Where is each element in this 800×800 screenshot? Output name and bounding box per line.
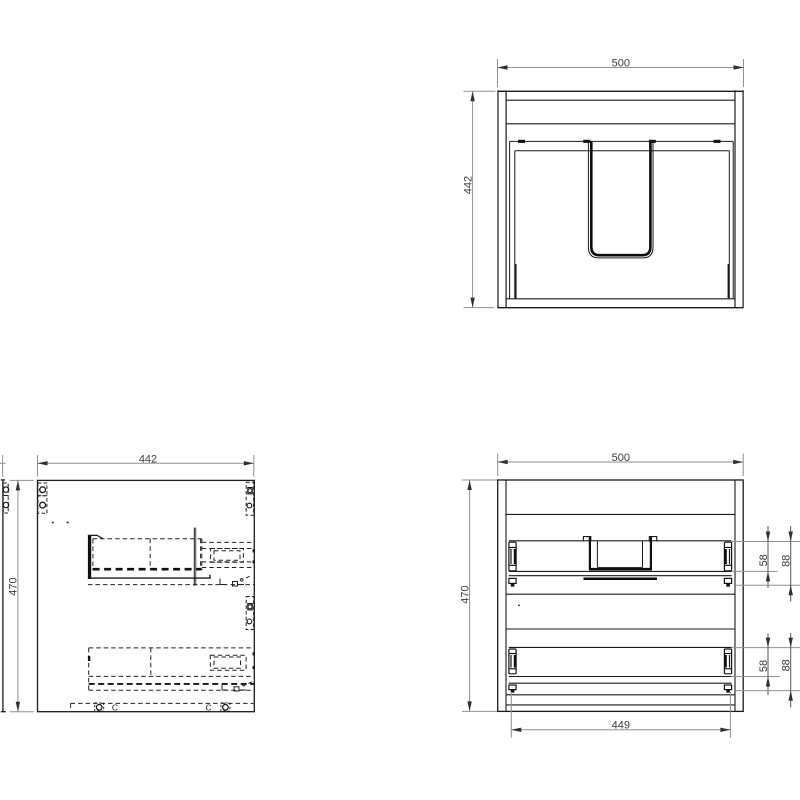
svg-text:470: 470 [8, 577, 20, 595]
svg-text:442: 442 [462, 176, 474, 194]
svg-text:88: 88 [781, 659, 793, 671]
svg-text:58: 58 [758, 660, 770, 672]
svg-text:C: C [112, 703, 118, 713]
svg-text:C: C [206, 703, 212, 713]
svg-text:500: 500 [612, 58, 630, 70]
svg-text:88: 88 [781, 555, 793, 567]
svg-text:58: 58 [758, 554, 770, 566]
svg-text:470: 470 [459, 585, 471, 603]
svg-text:449: 449 [612, 720, 630, 732]
svg-text:442: 442 [139, 454, 157, 466]
svg-text:500: 500 [612, 452, 630, 464]
